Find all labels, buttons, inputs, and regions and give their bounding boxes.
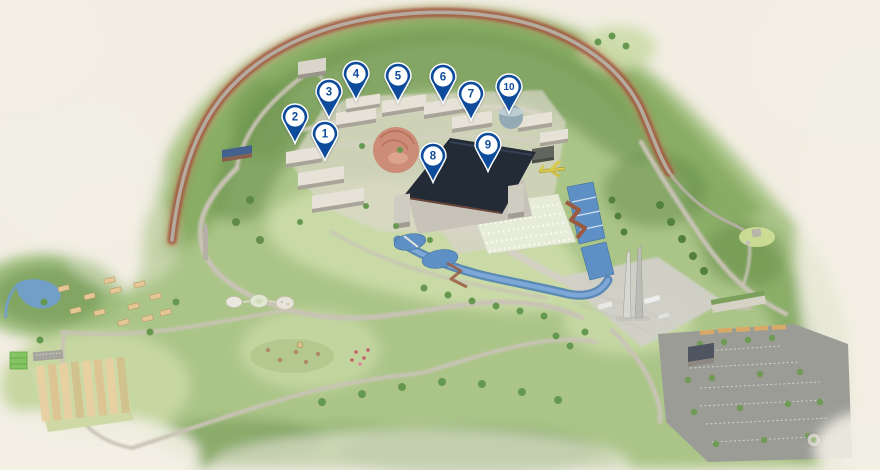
pin-number: 10 — [503, 82, 515, 93]
pin-number: 5 — [395, 71, 402, 83]
map-pin-3[interactable]: 3 — [312, 77, 346, 121]
map-pins-layer: 4 5 6 10 3 — [0, 0, 880, 470]
map-pin-icon: 2 — [278, 102, 312, 146]
pin-number: 3 — [326, 87, 332, 99]
map-pin-icon: 1 — [308, 119, 342, 163]
map-pin-5[interactable]: 5 — [381, 61, 415, 105]
map-pin-icon: 9 — [471, 130, 505, 174]
pin-number: 7 — [468, 89, 474, 101]
map-pin-2[interactable]: 2 — [278, 102, 312, 146]
map-pin-icon: 7 — [454, 79, 488, 123]
pin-number: 9 — [485, 140, 491, 152]
pin-number: 6 — [440, 72, 446, 84]
map-pin-1[interactable]: 1 — [308, 119, 342, 163]
map-pin-icon: 10 — [492, 72, 526, 116]
map-pin-9[interactable]: 9 — [471, 130, 505, 174]
map-pin-8[interactable]: 8 — [416, 141, 450, 185]
map-pin-icon: 3 — [312, 77, 346, 121]
map-pin-10[interactable]: 10 — [492, 72, 526, 116]
map-pin-icon: 5 — [381, 61, 415, 105]
pin-number: 8 — [430, 151, 437, 163]
map-pin-7[interactable]: 7 — [454, 79, 488, 123]
pin-number: 4 — [353, 69, 360, 81]
pin-number: 1 — [322, 129, 329, 141]
map-pin-icon: 8 — [416, 141, 450, 185]
pin-number: 2 — [292, 112, 298, 124]
campus-map: 4 5 6 10 3 — [0, 0, 880, 470]
